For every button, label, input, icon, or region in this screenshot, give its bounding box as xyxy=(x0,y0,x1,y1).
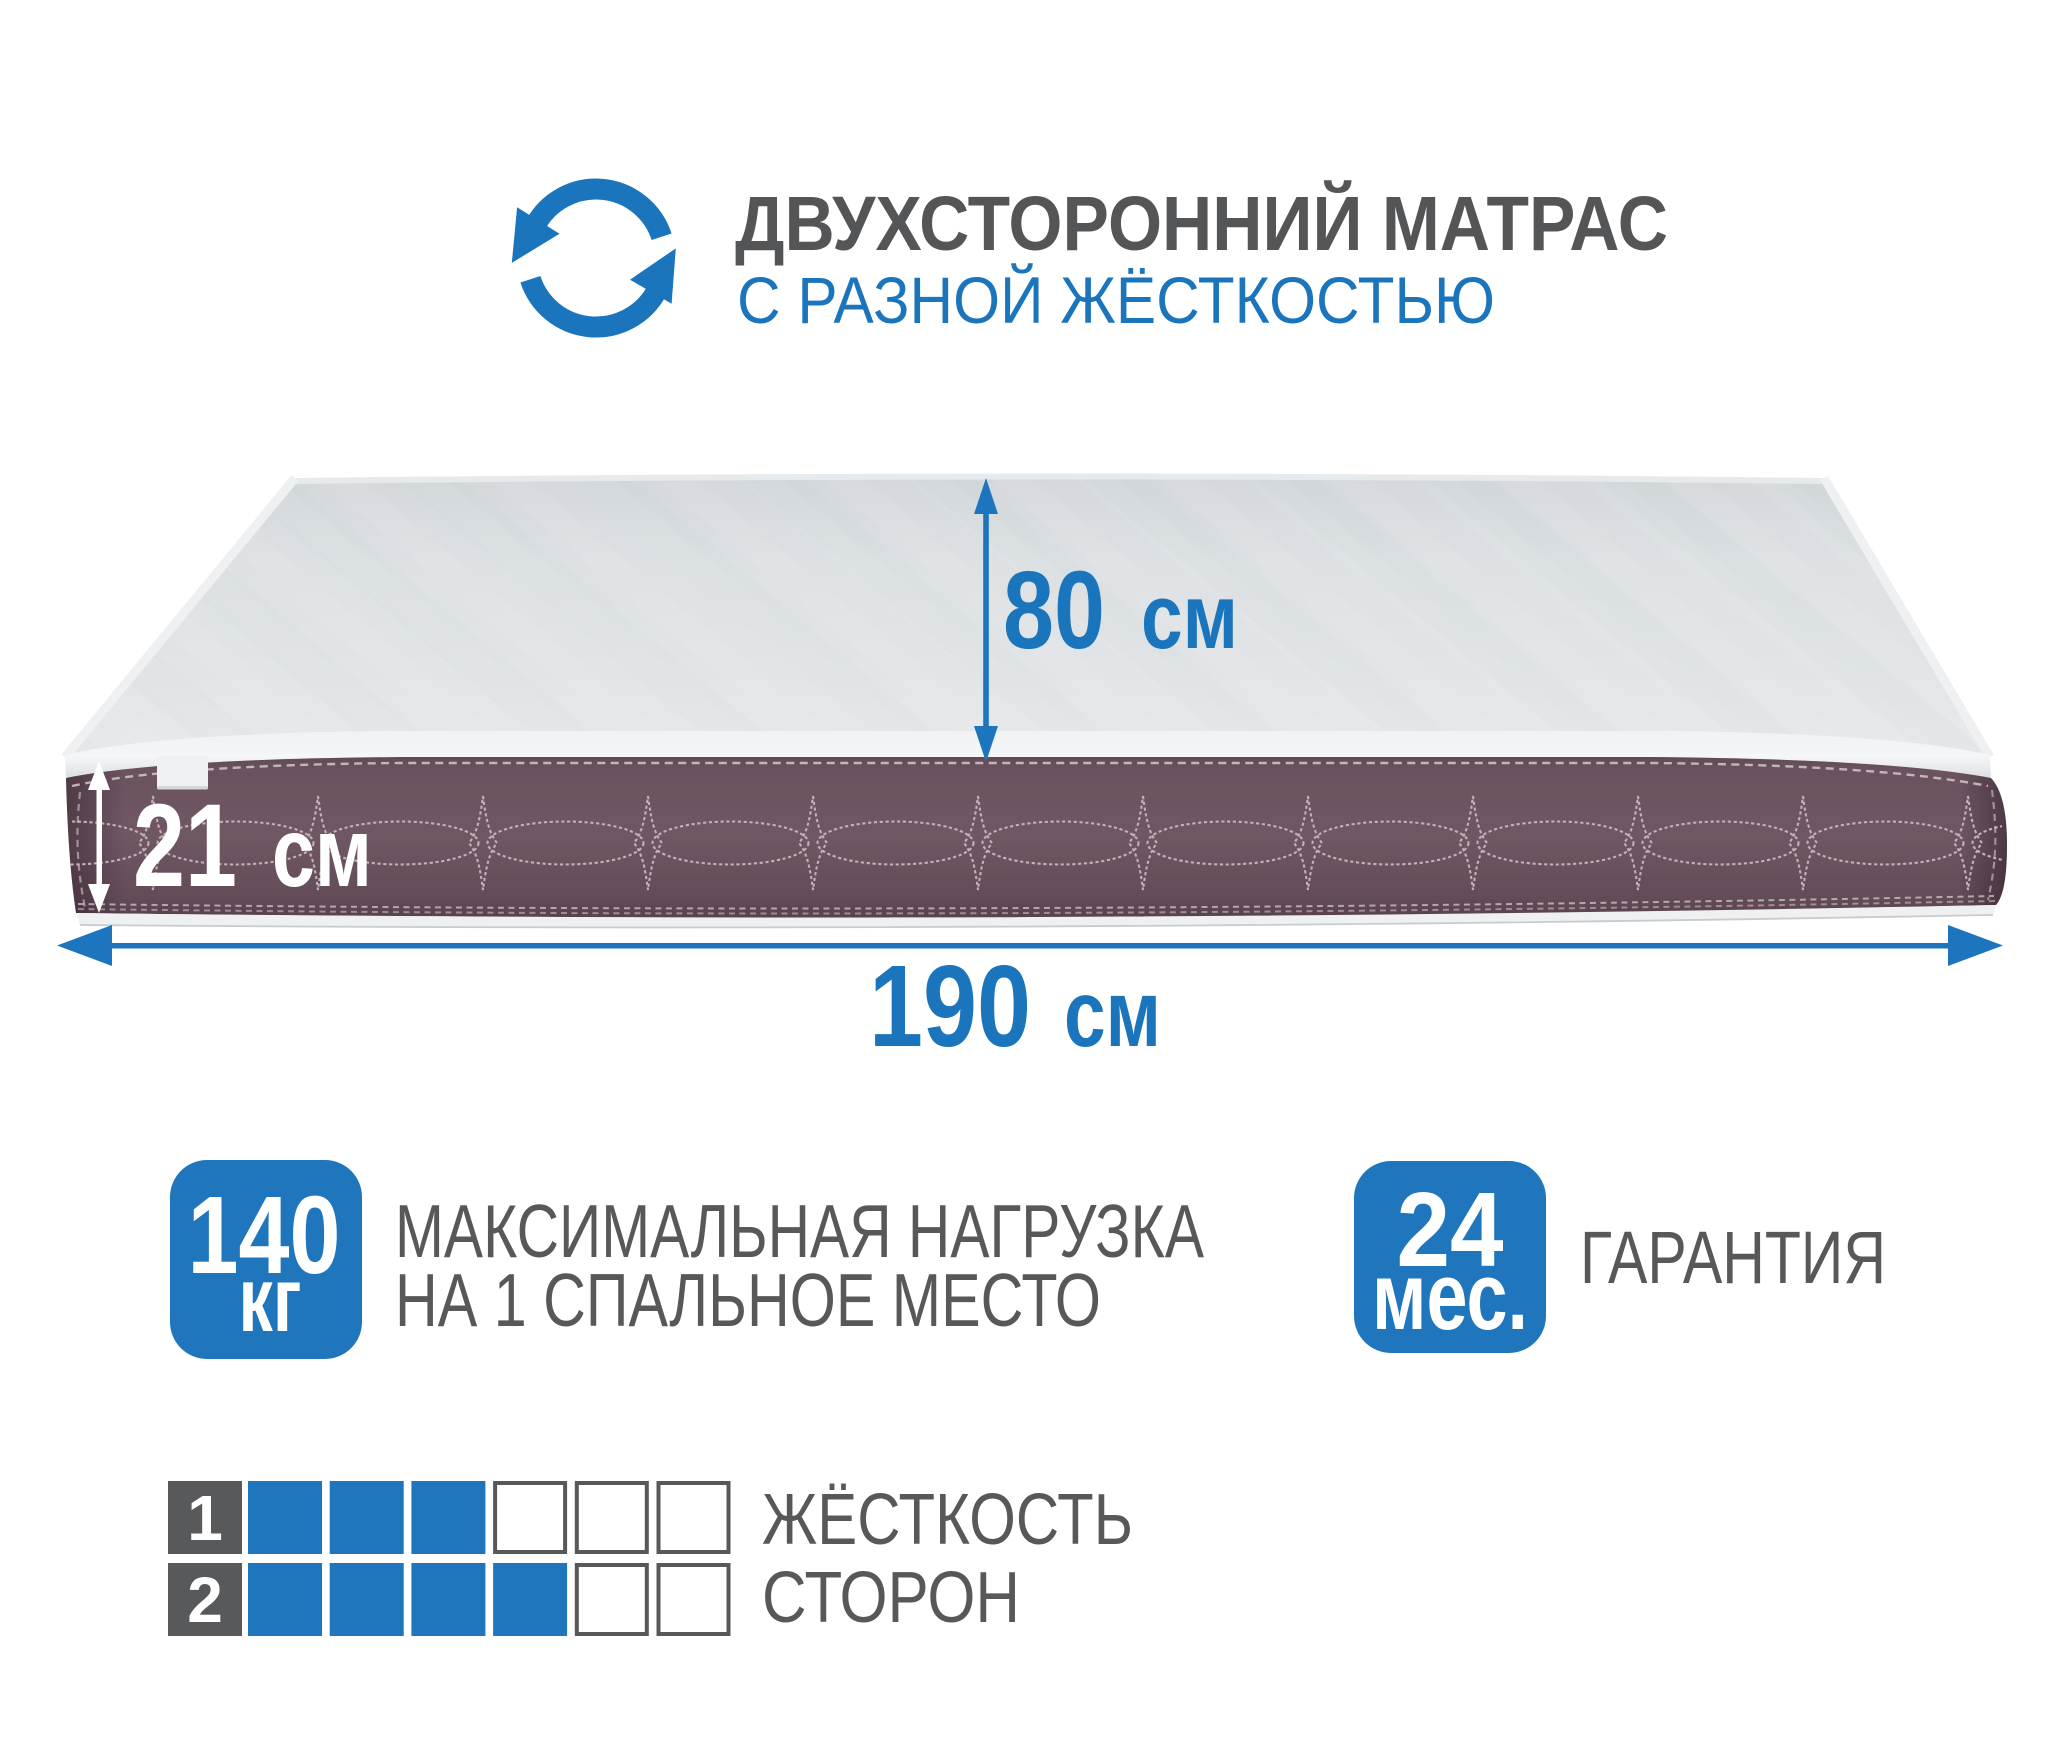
svg-text:кг: кг xyxy=(239,1249,302,1351)
svg-text:СТОРОН: СТОРОН xyxy=(762,1558,1020,1638)
svg-text:С РАЗНОЙ ЖЁСТКОСТЬЮ: С РАЗНОЙ ЖЁСТКОСТЬЮ xyxy=(737,262,1495,337)
svg-text:1: 1 xyxy=(187,1482,223,1554)
svg-text:НА 1 СПАЛЬНОЕ МЕСТО: НА 1 СПАЛЬНОЕ МЕСТО xyxy=(395,1258,1101,1342)
svg-text:см: см xyxy=(1064,961,1161,1067)
svg-text:190: 190 xyxy=(869,941,1031,1071)
svg-text:см: см xyxy=(1141,566,1238,668)
svg-text:80: 80 xyxy=(1003,549,1105,672)
svg-text:21: 21 xyxy=(133,780,237,912)
svg-text:см: см xyxy=(272,797,372,907)
svg-text:мес.: мес. xyxy=(1372,1243,1528,1350)
svg-text:ГАРАНТИЯ: ГАРАНТИЯ xyxy=(1580,1216,1886,1299)
svg-text:ЖЁСТКОСТЬ: ЖЁСТКОСТЬ xyxy=(762,1480,1133,1560)
svg-text:ДВУХСТОРОННИЙ МАТРАС: ДВУХСТОРОННИЙ МАТРАС xyxy=(735,179,1668,267)
svg-text:2: 2 xyxy=(187,1564,223,1636)
